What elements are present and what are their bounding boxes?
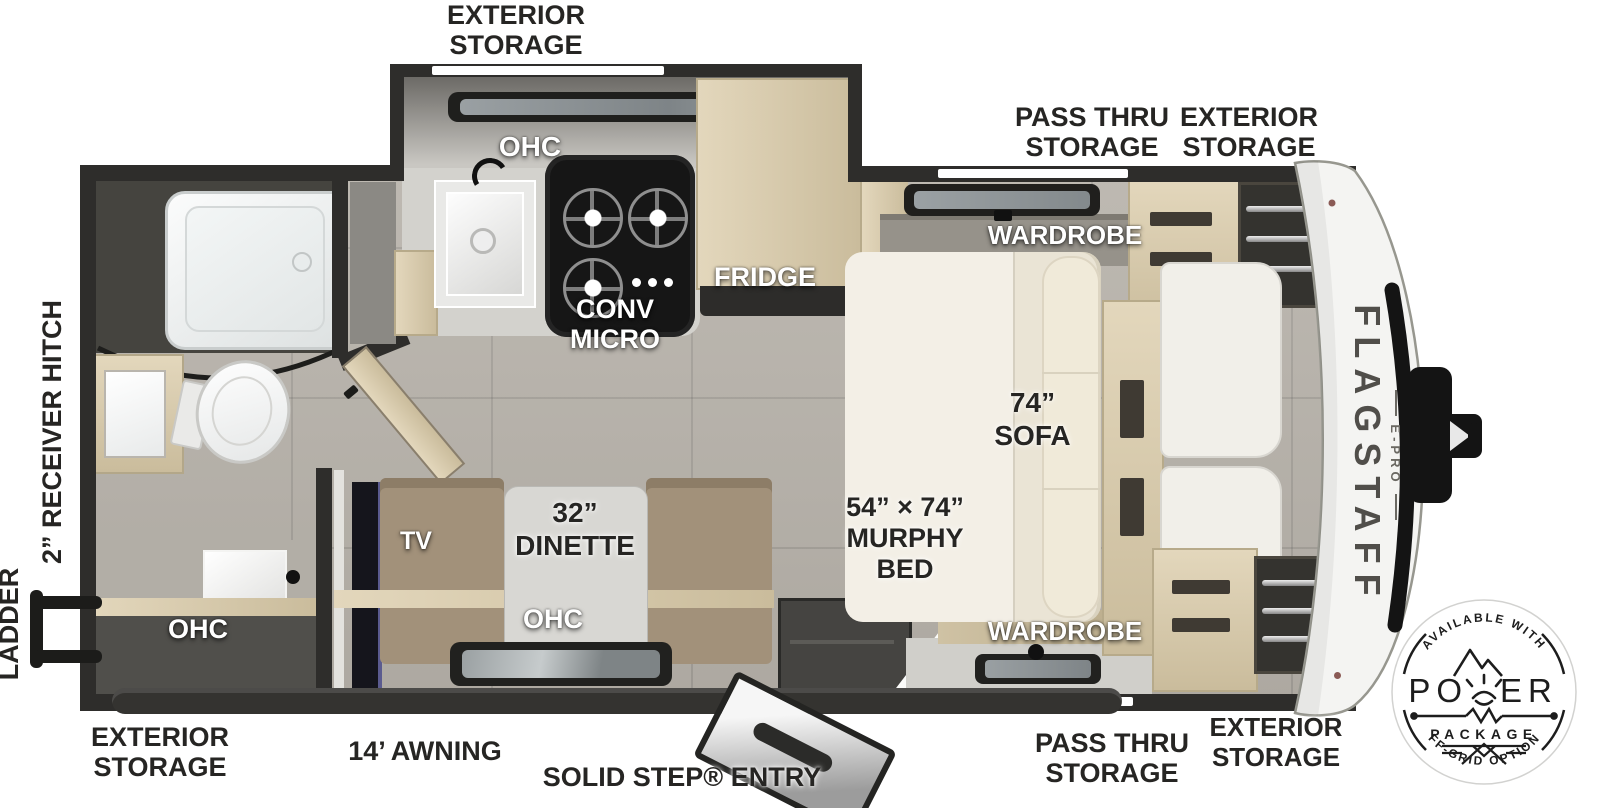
badge-package: PACKAGE: [1430, 726, 1537, 742]
label-line: STORAGE: [1159, 132, 1339, 162]
hitch-coupler-icon: [1450, 421, 1470, 451]
sofa-cushion-seam: [1042, 488, 1100, 490]
cooktop-knob: [648, 278, 657, 287]
hitch-knob: [1468, 423, 1480, 451]
brand-name-label: FLAGSTAFF: [1347, 304, 1389, 605]
label-wardrobe-bottom: WARDROBE: [980, 616, 1150, 646]
sofa-cushion-seam: [1042, 372, 1100, 374]
label-ladder: LADDER: [0, 524, 34, 724]
label-pass-thru-bottom: PASS THRU STORAGE: [1022, 728, 1202, 788]
wall-bath-partition-top: [332, 166, 348, 358]
label-line: EXTERIOR: [70, 722, 250, 752]
label-exterior-storage-top-right: EXTERIOR STORAGE: [1159, 102, 1339, 162]
rear-window-glass: [985, 660, 1091, 678]
label-line: EXTERIOR: [396, 0, 636, 30]
cap-screw-bottom: [1334, 672, 1341, 679]
label-line: DINETTE: [504, 529, 646, 562]
label-pass-thru-top: PASS THRU STORAGE: [1002, 102, 1182, 162]
label-line: PASS THRU: [1002, 102, 1182, 132]
label-receiver-hitch: 2” RECEIVER HITCH: [37, 222, 77, 642]
power-package-badge: AVAILABLE WITH OFF-GRID OPTIONS PO ER PA…: [1388, 596, 1580, 788]
dinette-window-glass: [462, 650, 660, 678]
wall-bath-partition-bottom: [316, 468, 332, 711]
label-bath-ohc: OHC: [158, 614, 238, 644]
bath-mirror: [104, 370, 166, 458]
label-line: STORAGE: [1022, 758, 1202, 788]
label-line: STORAGE: [1196, 742, 1356, 772]
label-sofa: 74” SOFA: [975, 386, 1090, 452]
cabinet-drawer: [1172, 618, 1230, 632]
label-line: 74”: [975, 386, 1090, 419]
kitchen-sink-drain: [470, 228, 496, 254]
entry-step-tread: [790, 640, 894, 644]
ladder-rung: [34, 650, 102, 663]
label-line: MICRO: [545, 324, 685, 354]
burner-icon: [628, 188, 688, 248]
cap-screw: [1329, 200, 1336, 207]
window-slide-top: [432, 66, 664, 75]
bed-panel-slot: [1120, 380, 1144, 438]
label-line: 32”: [504, 496, 646, 529]
label-line: STORAGE: [396, 30, 636, 60]
burner-icon: [563, 188, 623, 248]
tv-unit: [352, 482, 382, 688]
fridge-cabinet: [696, 78, 862, 290]
label-line: MURPHY: [830, 523, 980, 554]
label-line: BED: [830, 554, 980, 585]
awning-roll: [112, 688, 1122, 714]
label-exterior-storage-bottom-right: EXTERIOR STORAGE: [1196, 712, 1356, 772]
tub-drain: [292, 252, 312, 272]
label-murphy-bed: 54” × 74” MURPHY BED: [830, 492, 980, 585]
brand-series-label: E-PRO: [1389, 390, 1404, 519]
label-line: PASS THRU: [1022, 728, 1202, 758]
label-awning: 14’ AWNING: [330, 736, 520, 766]
dinette-slide-edge: [334, 470, 344, 696]
label-dinette: 32” DINETTE: [504, 496, 646, 562]
cooktop-knob: [664, 278, 673, 287]
bed-window-glass: [914, 191, 1090, 209]
wall-slide-left: [390, 64, 404, 181]
wall-top-bath: [80, 165, 398, 181]
cabinet-drawer: [1150, 212, 1212, 226]
pantry-cabinet: [394, 250, 438, 336]
cooktop-knob: [632, 278, 641, 287]
label-line: EXTERIOR: [1196, 712, 1356, 742]
bath-faucet: [286, 570, 300, 584]
bath-open-door-panel: [350, 182, 396, 344]
label-wardrobe-top: WARDROBE: [980, 220, 1150, 250]
label-kitchen-ohc: OHC: [455, 132, 605, 162]
wall-slide-right: [848, 64, 862, 181]
label-line: SOFA: [975, 419, 1090, 452]
dinette-bench-right: [646, 478, 772, 664]
label-line: EXTERIOR: [1159, 102, 1339, 132]
window-top-right: [938, 169, 1128, 178]
label-line: STORAGE: [70, 752, 250, 782]
label-solid-step-entry: SOLID STEP® ENTRY: [537, 762, 827, 792]
label-exterior-storage-top: EXTERIOR STORAGE: [396, 0, 636, 60]
wall-left: [80, 165, 96, 711]
label-exterior-storage-bottom-left: EXTERIOR STORAGE: [70, 722, 250, 782]
brand-logo: E-PRO FLAGSTAFF: [1340, 275, 1410, 635]
rear-window-knob: [1028, 644, 1044, 660]
label-fridge: FRIDGE: [700, 262, 830, 292]
badge-power-right: ER: [1500, 672, 1558, 709]
label-line: 54” × 74”: [830, 492, 980, 523]
label-dinette-ohc: OHC: [518, 604, 588, 634]
label-conv-micro: CONV MICRO: [545, 294, 685, 354]
bed-panel-slot: [1120, 478, 1144, 536]
badge-power-left: PO: [1408, 672, 1468, 709]
floorplan-canvas: E-PRO FLAGSTAFF AVAILABLE WITH OFF-GRID …: [0, 0, 1600, 808]
label-line: CONV: [545, 294, 685, 324]
label-line: STORAGE: [1002, 132, 1182, 162]
cabinet-drawer: [1172, 580, 1230, 594]
dinette-bench-left: [380, 478, 504, 664]
label-tv: TV: [390, 526, 442, 556]
